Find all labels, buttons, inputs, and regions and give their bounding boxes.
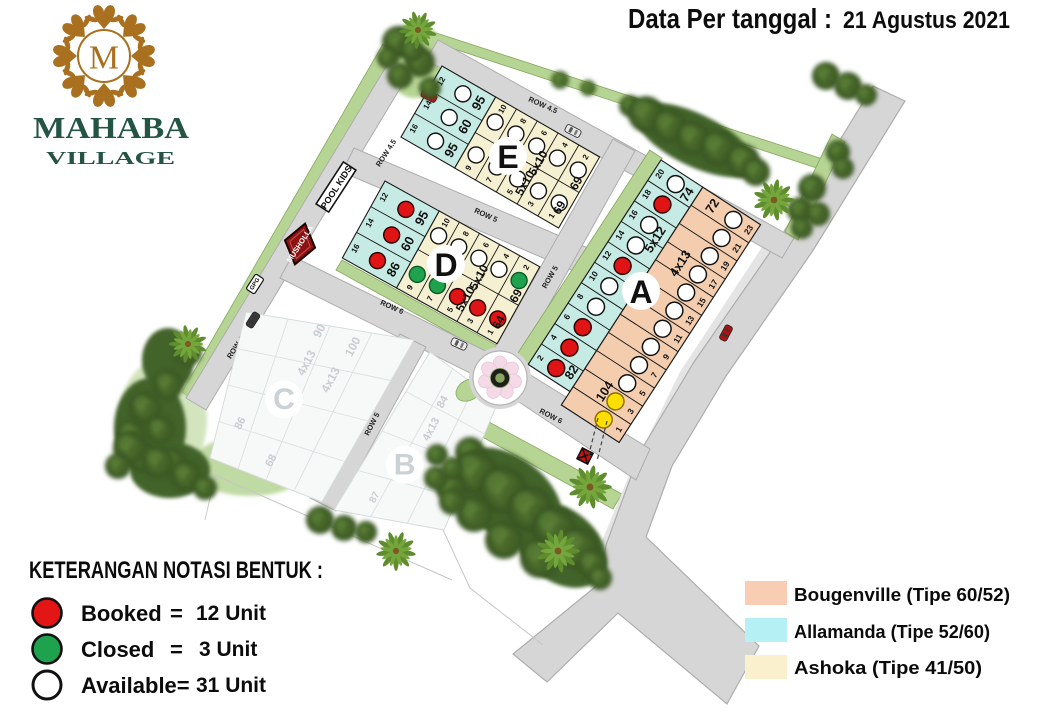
svg-text:=: =: [170, 637, 183, 662]
svg-text:Available=: Available=: [81, 673, 190, 698]
svg-text:Ashoka (Tipe 41/50): Ashoka (Tipe 41/50): [794, 658, 982, 678]
svg-text:E: E: [497, 139, 518, 175]
svg-text:C: C: [273, 383, 295, 416]
svg-text:31 Unit: 31 Unit: [196, 674, 266, 697]
svg-text:VILLAGE: VILLAGE: [46, 148, 175, 168]
svg-text:21 Agustus 2021: 21 Agustus 2021: [843, 7, 1010, 34]
svg-text:D: D: [434, 247, 457, 283]
svg-text:M: M: [89, 40, 119, 77]
svg-text:12 Unit: 12 Unit: [196, 602, 266, 625]
svg-text:Allamanda (Tipe 52/60): Allamanda (Tipe 52/60): [794, 622, 990, 642]
svg-text:Closed: Closed: [81, 637, 154, 662]
svg-text:Data Per tanggal :: Data Per tanggal :: [628, 3, 832, 34]
svg-text:3 Unit: 3 Unit: [199, 638, 257, 661]
svg-text:B: B: [394, 448, 416, 481]
svg-text:Booked: Booked: [81, 601, 162, 626]
svg-text:Bougenville (Tipe 60/52): Bougenville (Tipe 60/52): [794, 585, 1010, 605]
svg-text:KETERANGAN NOTASI BENTUK :: KETERANGAN NOTASI BENTUK :: [29, 557, 323, 584]
svg-text:=: =: [170, 601, 183, 626]
svg-text:MAHABA: MAHABA: [33, 110, 190, 145]
svg-text:A: A: [629, 274, 652, 310]
